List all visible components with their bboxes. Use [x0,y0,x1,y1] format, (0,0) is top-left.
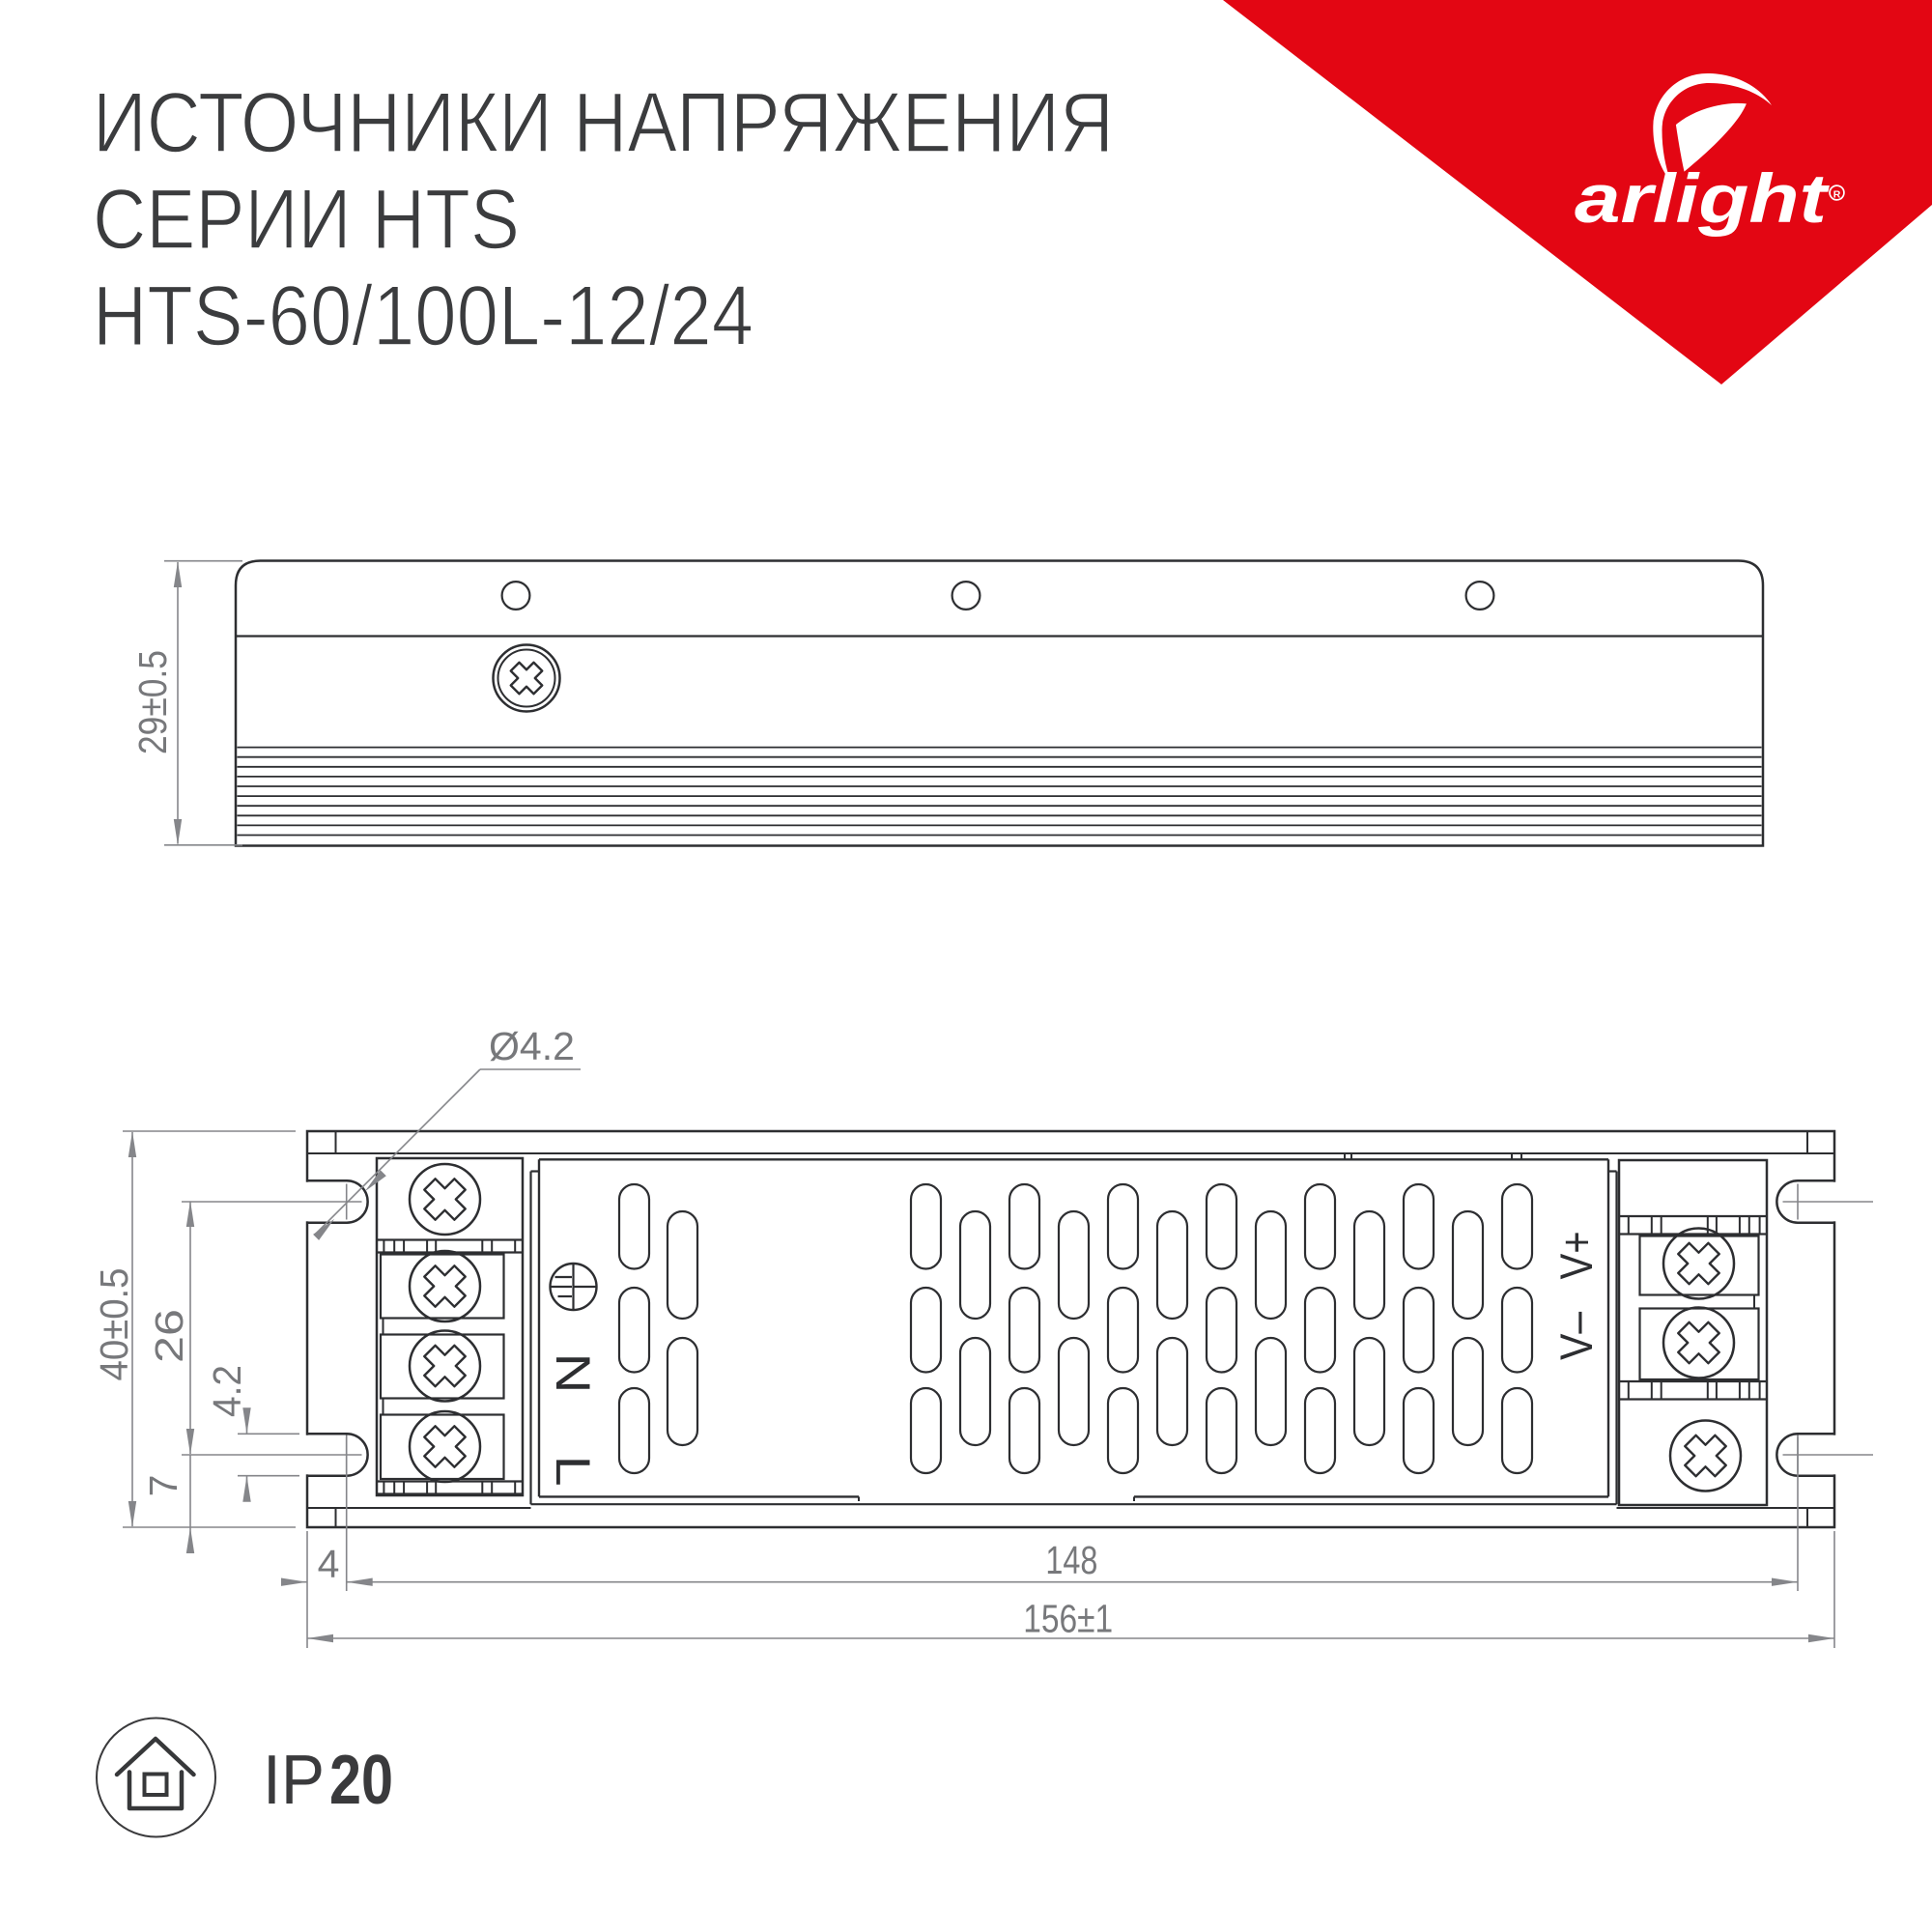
svg-text:20: 20 [329,1742,393,1819]
svg-text:29±0.5: 29±0.5 [130,650,175,754]
svg-text:156±1: 156±1 [1023,1596,1113,1640]
svg-text:V–: V– [1550,1311,1602,1360]
svg-text:L: L [546,1456,600,1487]
svg-text:26: 26 [147,1309,191,1363]
svg-text:4.2: 4.2 [205,1365,249,1417]
svg-text:СЕРИИ HTS: СЕРИИ HTS [93,171,520,267]
svg-text:4: 4 [318,1542,340,1586]
svg-text:Ø4.2: Ø4.2 [489,1024,575,1068]
svg-text:7: 7 [141,1475,185,1497]
svg-text:R: R [1833,188,1841,200]
svg-text:arlight: arlight [1575,161,1831,238]
svg-text:N: N [546,1353,600,1394]
svg-text:ИСТОЧНИКИ НАПРЯЖЕНИЯ: ИСТОЧНИКИ НАПРЯЖЕНИЯ [93,74,1114,170]
svg-text:V+: V+ [1550,1231,1602,1279]
svg-text:HTS-60/100L-12/24: HTS-60/100L-12/24 [93,268,753,363]
svg-text:40±0.5: 40±0.5 [92,1268,136,1381]
svg-text:148: 148 [1045,1538,1097,1582]
svg-text:IP: IP [263,1742,325,1819]
